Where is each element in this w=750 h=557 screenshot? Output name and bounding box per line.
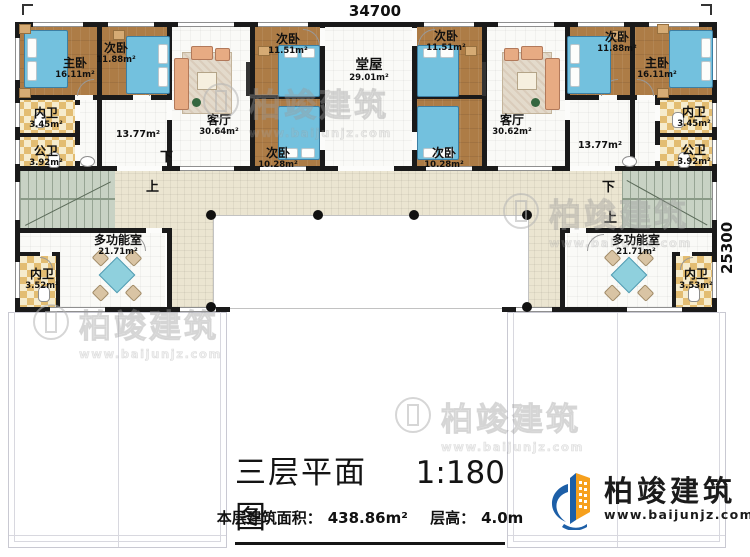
room-area: 11.88m² [88, 56, 144, 66]
wall [672, 252, 717, 256]
door-opening [167, 100, 172, 120]
dimension-tick [22, 4, 33, 15]
window [424, 22, 474, 27]
room-area: 13.77m² [570, 141, 630, 152]
brand-logo-icon [542, 468, 596, 530]
pillow [570, 67, 580, 87]
watermark-logo-icon [30, 301, 72, 343]
door-opening [570, 166, 615, 171]
room-name: 内卫 [670, 268, 722, 282]
watermark-text: 柏竣建筑 www.baijunjz.com [79, 301, 222, 361]
door-opening [75, 145, 80, 161]
nightstand [657, 24, 669, 34]
dimension-depth: 25300 [718, 224, 736, 274]
wall [660, 133, 712, 137]
watermark-url: www.baijunjz.com [79, 347, 222, 361]
room-area: 16.11m² [627, 71, 687, 81]
room-label-bed1188-left: 次卧 11.88m² [88, 42, 144, 66]
watermark: 柏竣建筑 www.baijunjz.com [392, 394, 584, 454]
room-name: 次卧 [260, 33, 316, 47]
room-label-wing-bath-right: 内卫 3.53m² [670, 268, 722, 292]
courtyard-void [213, 215, 529, 309]
watermark-url: www.baijunjz.com [249, 126, 392, 140]
pillow [701, 61, 711, 81]
door-opening [655, 145, 660, 161]
brand-text: 柏竣建筑 www.baijunjz.com [604, 476, 750, 521]
room-label-bed1028-right: 次卧 10.28m² [416, 147, 472, 171]
door-opening [75, 105, 80, 121]
wall [15, 252, 60, 256]
door-opening [146, 228, 162, 233]
watermark-brand: 柏竣建筑 [79, 301, 222, 347]
title-scale: 1:180 [416, 455, 505, 491]
room-name: 公卫 [668, 144, 720, 158]
room-area: 3.92m² [668, 158, 720, 168]
drawing-title: 三层平面图 1:180 [235, 447, 505, 545]
room-area: 13.77m² [108, 130, 168, 141]
room-area: 3.45m² [20, 121, 72, 131]
floor-height-label: 层高： [430, 509, 475, 527]
roof-eave-line [9, 535, 226, 536]
column [206, 210, 216, 220]
tv-cabinet [482, 62, 486, 96]
floor-area-label: 本层建筑面积： [217, 509, 322, 527]
room-area: 3.52m² [16, 282, 68, 292]
sofa [545, 58, 560, 110]
sink [80, 156, 95, 167]
brand-logo: 柏竣建筑 www.baijunjz.com [542, 468, 750, 530]
room-label-master-right: 主卧 16.11m² [627, 57, 687, 81]
window [498, 22, 554, 27]
room-label-corridor-left: 13.77m² [108, 130, 168, 141]
room-name: 内卫 [668, 106, 720, 120]
sofa [191, 46, 213, 60]
watermark: 柏竣建筑 www.baijunjz.com [500, 190, 692, 250]
pillow [27, 61, 37, 81]
room-label-living-right: 客厅 30.62m² [484, 114, 540, 138]
balcony-left [170, 230, 213, 307]
room-label-corridor-right: 13.77m² [570, 141, 630, 152]
pillow [158, 67, 168, 87]
watermark-url: www.baijunjz.com [549, 236, 692, 250]
room-area: 11.51m² [260, 47, 316, 57]
door-opening [117, 166, 162, 171]
room-area: 10.28m² [416, 161, 472, 171]
watermark-logo-icon [392, 394, 434, 436]
room-area: 10.28m² [250, 161, 306, 171]
room-name: 客厅 [484, 114, 540, 128]
pillow [27, 38, 37, 58]
door-opening [680, 252, 692, 256]
drawing-subtitle: 本层建筑面积：438.86m² 层高：4.0m [175, 507, 565, 528]
window [33, 22, 83, 27]
room-name: 主卧 [627, 57, 687, 71]
dimension-tick [701, 4, 712, 15]
room-label-inner-bath-left: 内卫 3.45m² [20, 107, 72, 131]
watermark: 柏竣建筑 www.baijunjz.com [30, 301, 222, 361]
room-corridor-right [568, 95, 655, 173]
door-opening [40, 252, 52, 256]
window [258, 22, 308, 27]
room-name: 次卧 [416, 147, 472, 161]
room-label-bed1151-right: 次卧 11.51m² [418, 30, 474, 54]
column [409, 210, 419, 220]
door-opening [412, 28, 417, 46]
window [178, 22, 234, 27]
stair-down-label-left: 下 [160, 146, 173, 165]
watermark-logo-icon [200, 80, 242, 122]
room-name: 内卫 [16, 268, 68, 282]
window [108, 22, 154, 27]
watermark: 柏竣建筑 www.baijunjz.com [200, 80, 392, 140]
room-area: 3.92m² [20, 159, 72, 169]
sofa [521, 46, 543, 60]
window [578, 22, 624, 27]
brand-name: 柏竣建筑 [604, 476, 750, 506]
stair-up-label-left: 上 [146, 176, 159, 195]
room-area: 3.53m² [670, 282, 722, 292]
pillow [701, 38, 711, 58]
door-opening [565, 100, 570, 120]
door-opening [320, 28, 325, 46]
floor-height-value: 4.0m [481, 509, 523, 527]
room-area: 3.45m² [668, 120, 720, 130]
wall [17, 133, 75, 137]
window [15, 38, 20, 80]
watermark-brand: 柏竣建筑 [549, 190, 692, 236]
stair-rail-left [20, 198, 115, 200]
room-name: 多功能室 [80, 234, 156, 248]
pillow [158, 44, 168, 64]
watermark-text: 柏竣建筑 www.baijunjz.com [441, 394, 584, 454]
room-area: 21.71m² [80, 248, 156, 258]
room-name: 公卫 [20, 145, 72, 159]
window [15, 182, 20, 220]
column [522, 302, 532, 312]
room-label-public-bath-right: 公卫 3.92m² [668, 144, 720, 168]
window [712, 182, 717, 220]
armchair [215, 48, 230, 61]
wall [167, 228, 172, 312]
floor-plan: 主卧 16.11m² 次卧 11.88m² 内卫 3.45m² 公卫 3.92m… [0, 0, 750, 557]
watermark-brand: 柏竣建筑 [249, 80, 392, 126]
room-label-public-bath-left: 公卫 3.92m² [20, 145, 72, 169]
room-name: 内卫 [20, 107, 72, 121]
room-name: 次卧 [589, 31, 645, 45]
nightstand [657, 88, 669, 98]
pillow [570, 44, 580, 64]
dimension-width: 34700 [320, 2, 430, 20]
sofa [174, 58, 189, 110]
room-label-bed1151-left: 次卧 11.51m² [260, 33, 316, 57]
room-name: 堂屋 [329, 58, 409, 74]
room-name: 次卧 [418, 30, 474, 44]
room-area: 16.11m² [45, 71, 105, 81]
room-name: 次卧 [88, 42, 144, 56]
coffee-table [517, 72, 537, 90]
room-area: 11.88m² [589, 45, 645, 55]
nightstand [19, 24, 31, 34]
room-label-wing-bath-left: 内卫 3.52m² [16, 268, 68, 292]
door-opening [338, 166, 394, 171]
room-label-bed1188-right: 次卧 11.88m² [589, 31, 645, 55]
watermark-text: 柏竣建筑 www.baijunjz.com [549, 190, 692, 250]
column [313, 210, 323, 220]
watermark-text: 柏竣建筑 www.baijunjz.com [249, 80, 392, 140]
room-name: 次卧 [250, 147, 306, 161]
plant [531, 98, 540, 107]
nightstand [113, 30, 125, 40]
watermark-brand: 柏竣建筑 [441, 394, 584, 440]
watermark-logo-icon [500, 190, 542, 232]
sink [622, 156, 637, 167]
window [180, 166, 234, 171]
room-label-inner-bath-right: 内卫 3.45m² [668, 106, 720, 130]
window [498, 166, 552, 171]
floor-area-value: 438.86m² [328, 509, 408, 527]
room-area: 30.62m² [484, 128, 540, 138]
nightstand [19, 88, 31, 98]
door-opening [655, 105, 660, 121]
room-label-multi-left: 多功能室 21.71m² [80, 234, 156, 258]
armchair [504, 48, 519, 61]
room-label-bed1028-left: 次卧 10.28m² [250, 147, 306, 171]
roof-eave-line [508, 535, 725, 536]
room-area: 11.51m² [418, 44, 474, 54]
brand-website: www.baijunjz.com [604, 507, 750, 522]
